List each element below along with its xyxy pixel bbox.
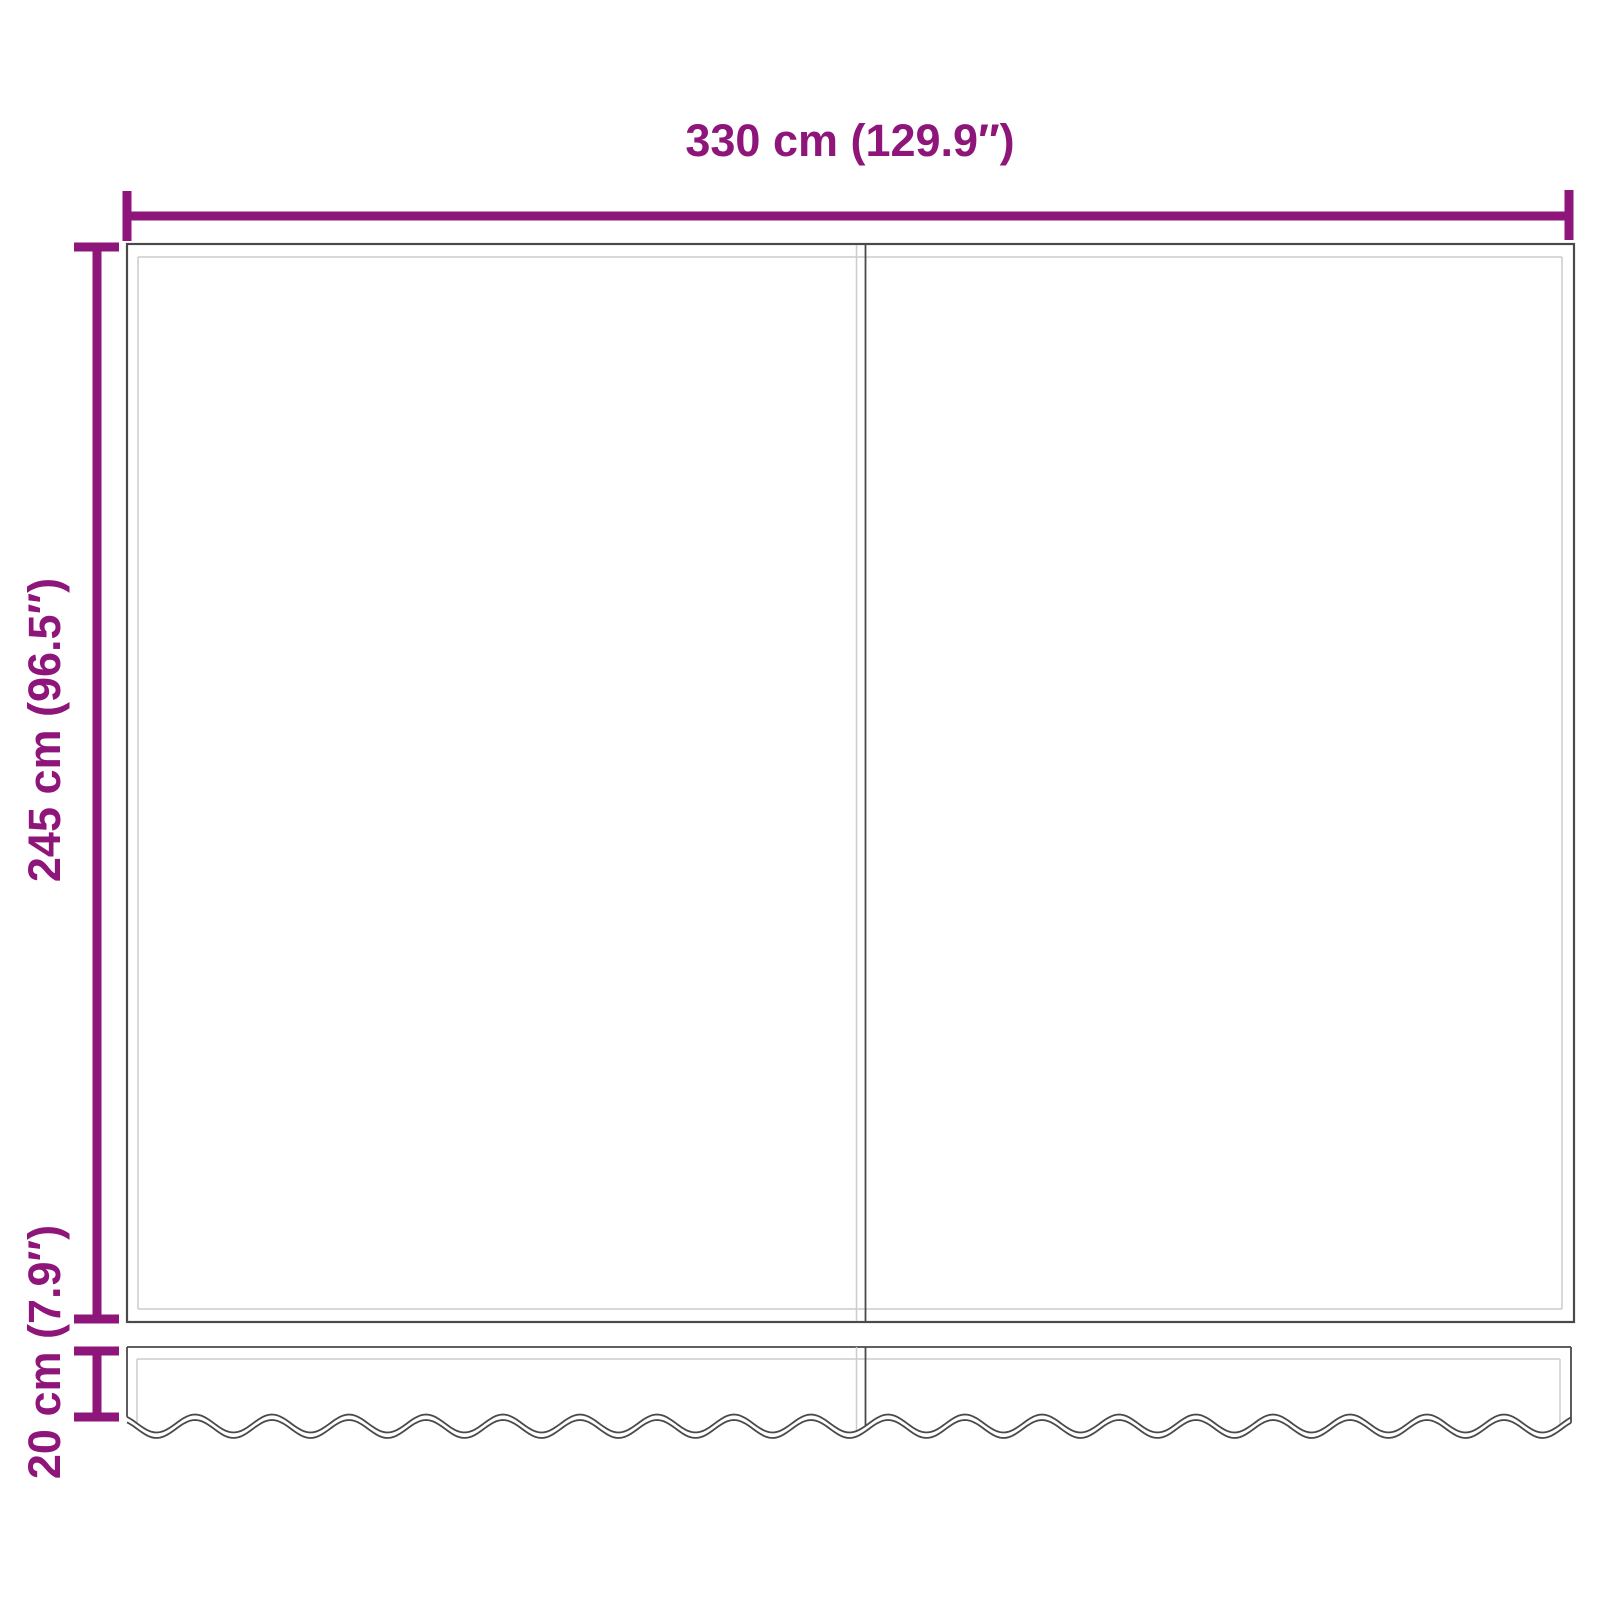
valance-dimension-label: 20 cm (7.9″) <box>19 1225 70 1479</box>
width-dimension-label: 330 cm (129.9″) <box>685 115 1014 166</box>
fabric-panel <box>127 244 1574 1322</box>
valance <box>127 1347 1571 1438</box>
fabric-panel-outline <box>127 244 1574 1322</box>
awning-fabric-dimension-diagram: 330 cm (129.9″) 245 cm (96.5″) 20 cm (7.… <box>0 0 1600 1600</box>
valance-body <box>127 1347 1571 1433</box>
valance-height-dimension: 20 cm (7.9″) <box>19 1225 119 1479</box>
diagram-svg: 330 cm (129.9″) 245 cm (96.5″) 20 cm (7.… <box>0 0 1600 1600</box>
height-dimension: 245 cm (96.5″) <box>19 247 119 1319</box>
width-dimension: 330 cm (129.9″) <box>127 115 1569 241</box>
height-dimension-label: 245 cm (96.5″) <box>19 578 70 882</box>
